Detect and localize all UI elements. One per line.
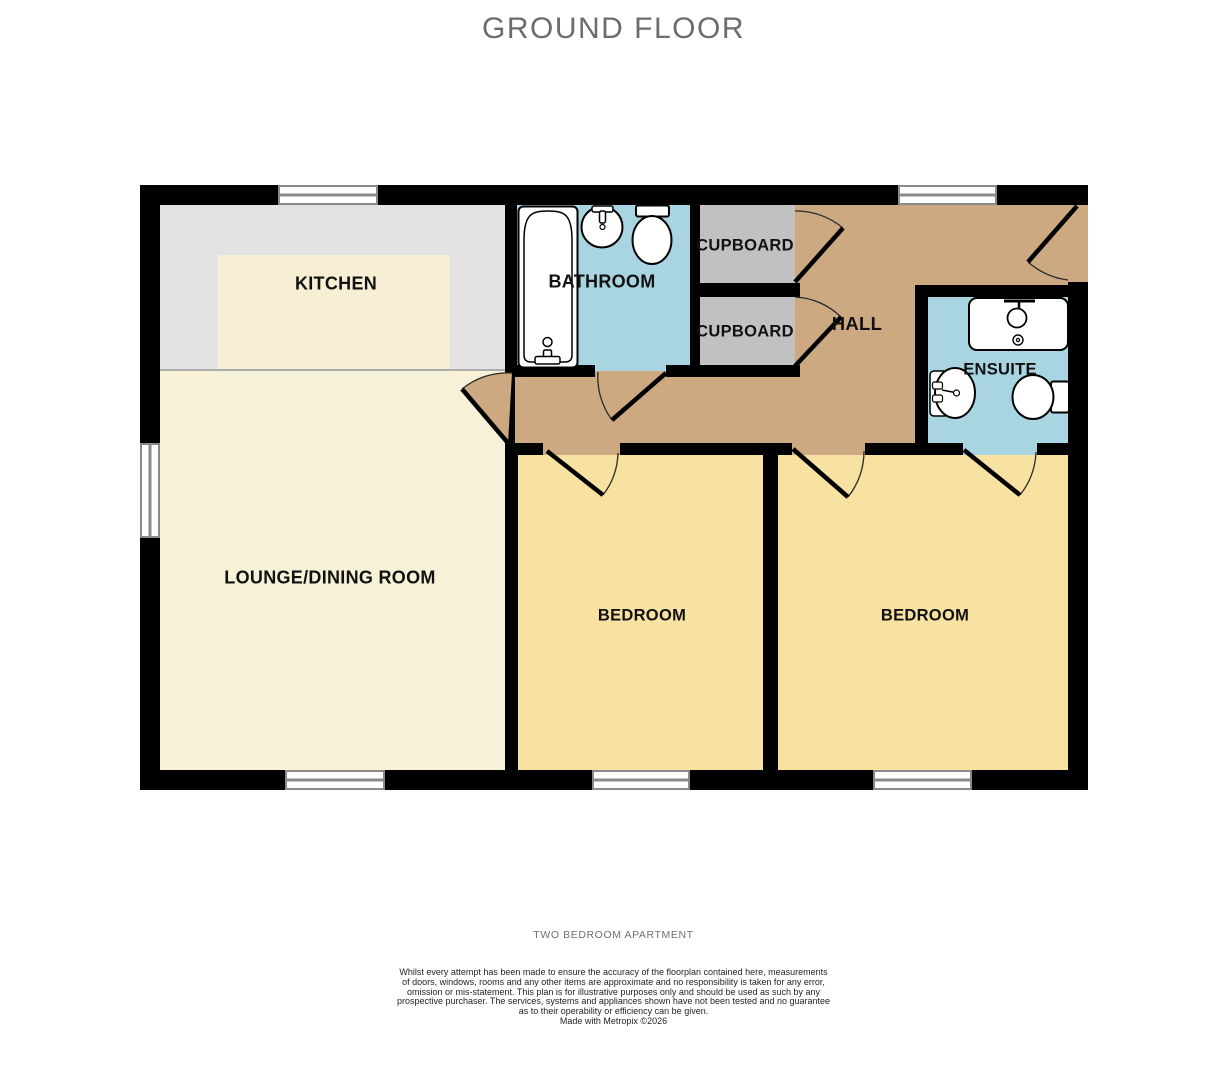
bedroom-right-label: BEDROOM	[881, 607, 969, 626]
apartment-caption: TWO BEDROOM APARTMENT	[533, 929, 693, 941]
page-title: GROUND FLOOR	[482, 12, 745, 46]
wall-hall-bedrooms-1	[505, 443, 543, 455]
wall-cupboard-divider	[690, 283, 800, 297]
wall-hall-bedrooms-4	[1037, 443, 1068, 455]
window-kitchen-top	[278, 185, 378, 205]
wall-hall-bedrooms-3	[865, 443, 963, 455]
floorplan-page: GROUND FLOOR	[0, 0, 1227, 1080]
window-hall-top	[898, 185, 997, 205]
entrance-door-opening	[1068, 205, 1088, 282]
window-lounge-left	[140, 443, 160, 538]
hall-label: HALL	[832, 313, 883, 335]
cupboard-bottom-label: CUPBOARD	[696, 323, 794, 342]
window-lounge-bottom	[285, 770, 385, 790]
metropix-credit: Made with Metropix ©2026	[0, 1017, 1227, 1027]
wall-lounge-bedroom	[505, 443, 518, 790]
bathroom-label: BATHROOM	[548, 272, 655, 293]
ensuite-door-opening-floor	[963, 443, 1037, 455]
wall-kitchen-bathroom	[505, 205, 517, 373]
wall-ensuite-top	[915, 285, 1068, 297]
kitchen-label: KITCHEN	[295, 274, 377, 295]
kitchen-worktop-area	[218, 255, 450, 369]
disclaimer-text: Whilst every attempt has been made to en…	[0, 968, 1227, 1027]
bedroom-left-label: BEDROOM	[598, 607, 686, 626]
wall-bathroom-bottom-right	[666, 365, 800, 377]
window-bedroom-left-bottom	[592, 770, 690, 790]
wall-ensuite-left	[915, 285, 928, 455]
window-bedroom-right-bottom	[873, 770, 972, 790]
wall-bedroom-divider	[763, 443, 778, 770]
cupboard-top-label: CUPBOARD	[696, 237, 794, 256]
ensuite-label: ENSUITE	[963, 361, 1037, 380]
wall-bathroom-bottom-left	[505, 365, 595, 377]
lounge-label: LOUNGE/DINING ROOM	[224, 568, 435, 589]
